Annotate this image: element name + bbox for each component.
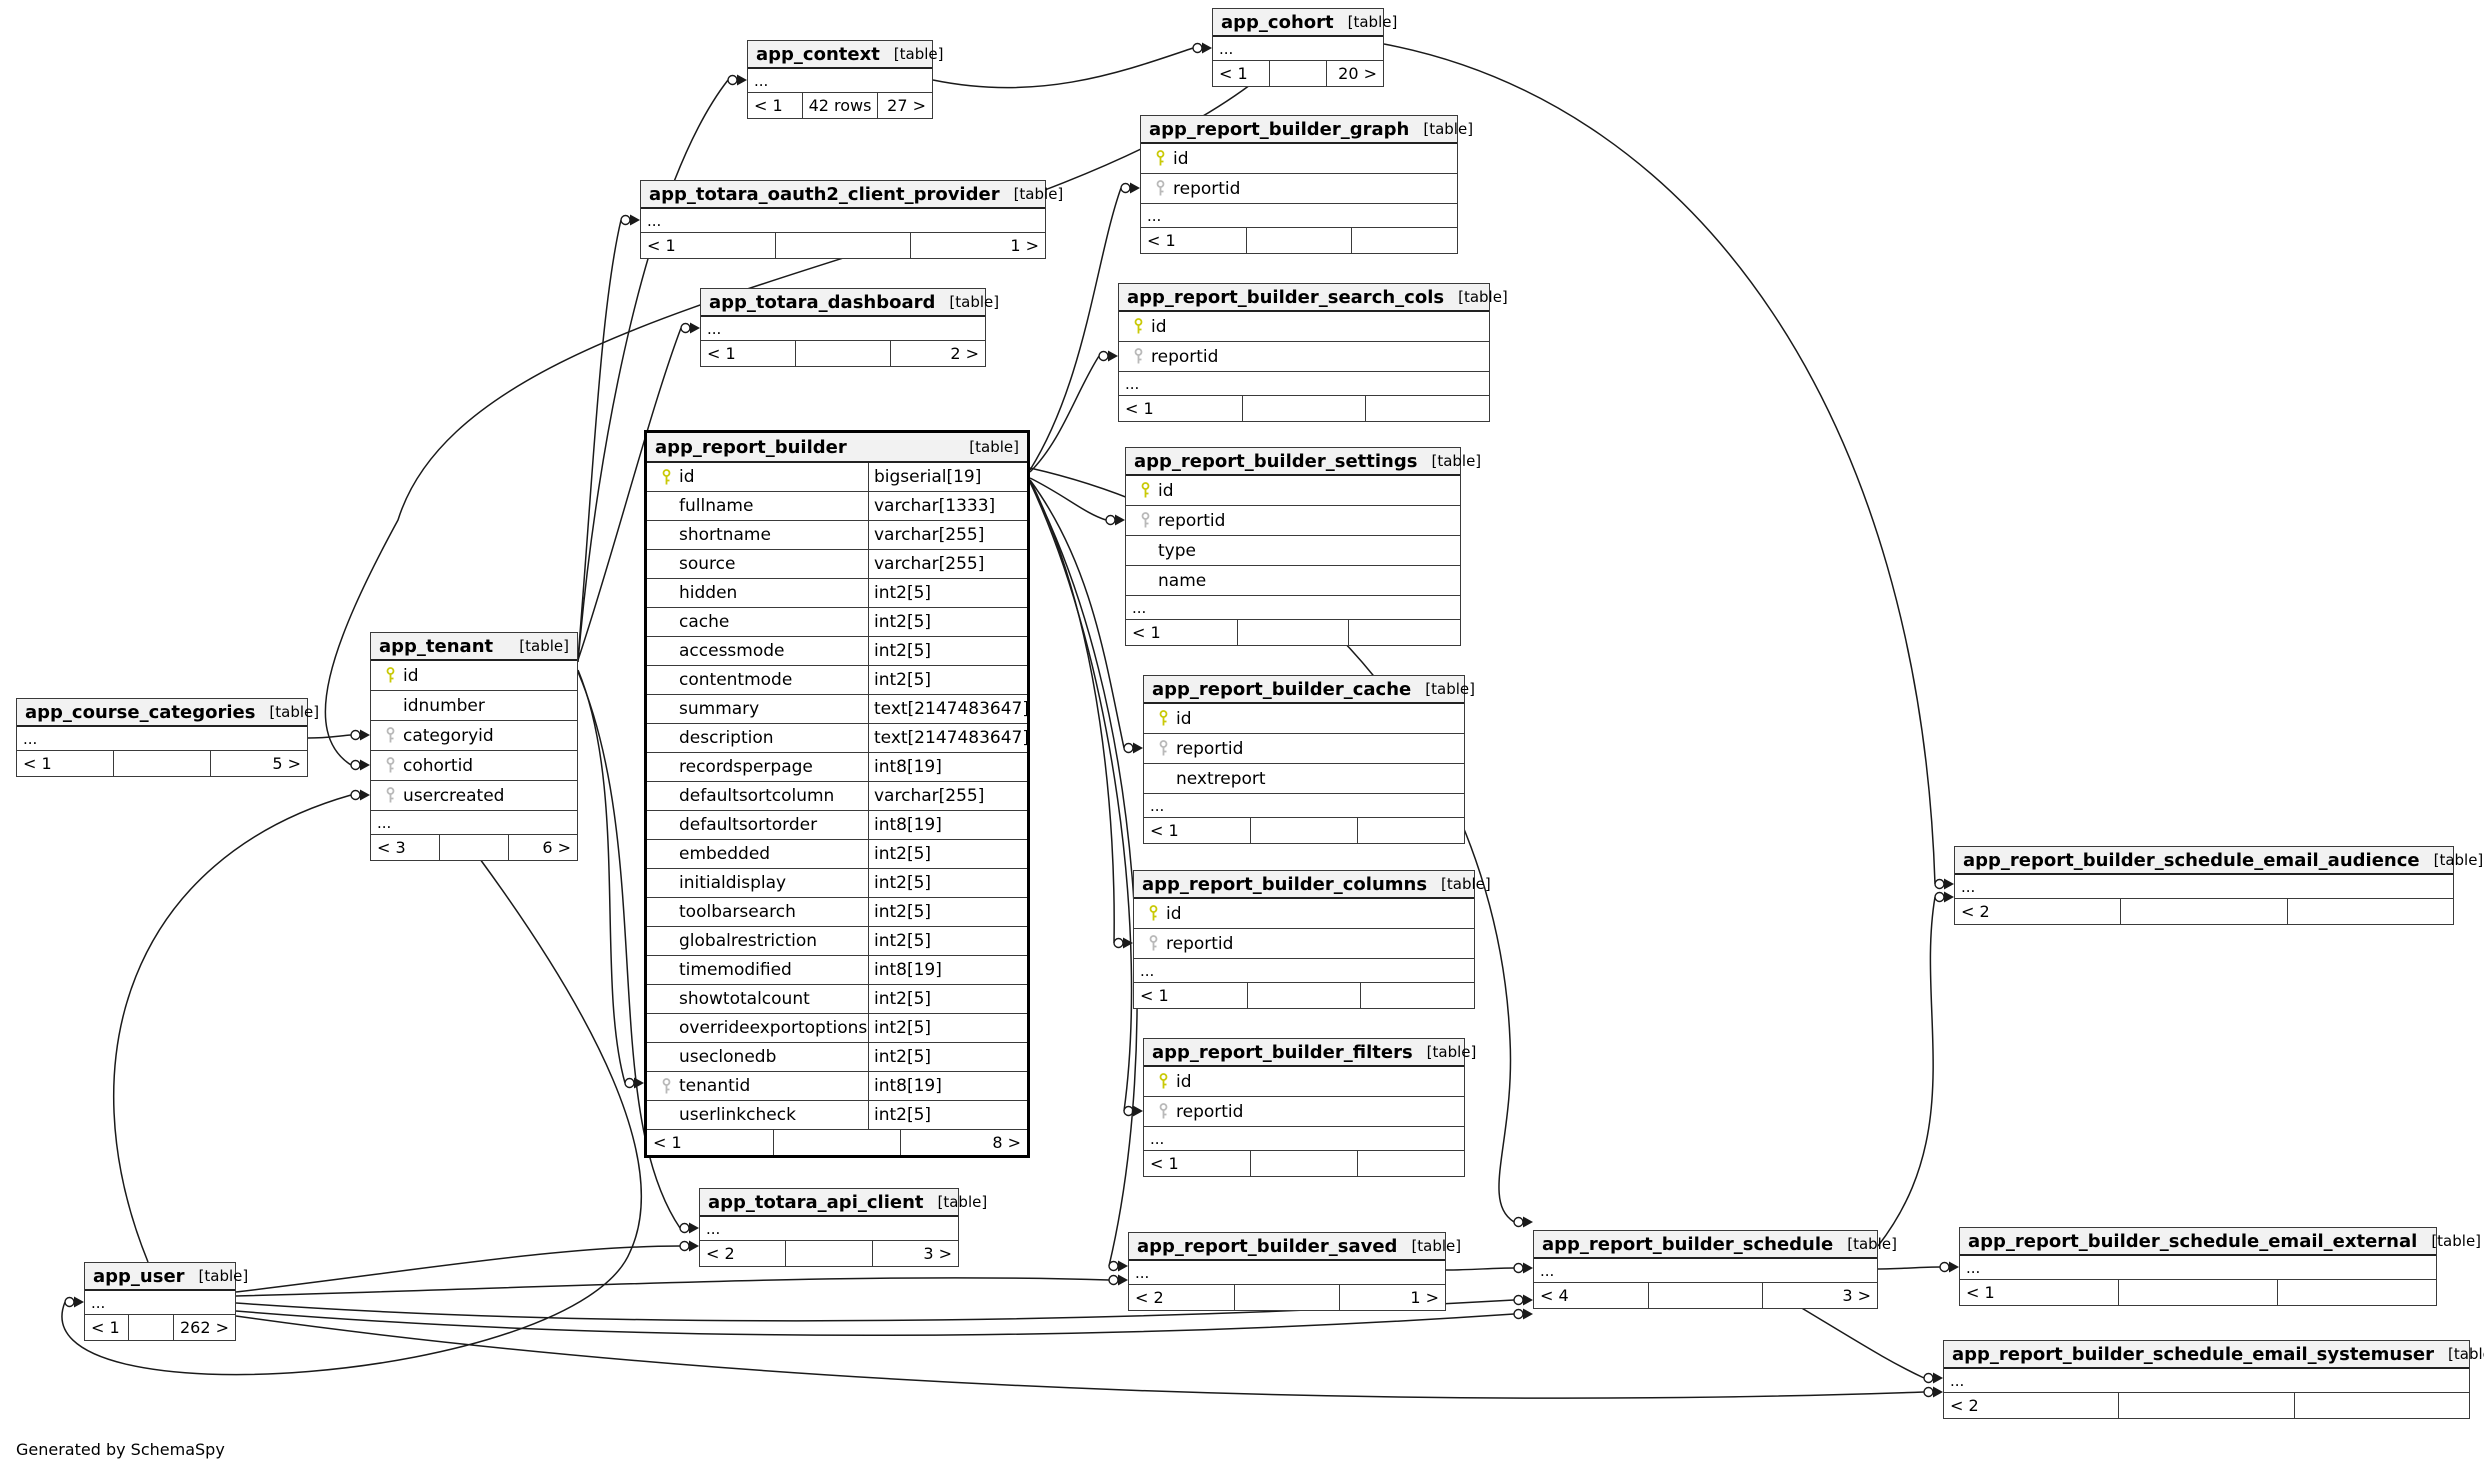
rows-count <box>440 835 509 860</box>
table-header: app_report_builder_settings[table] <box>1126 448 1460 476</box>
edge-line <box>1446 1268 1514 1270</box>
edge-app_context--app_cohort <box>933 43 1212 88</box>
table-badge: [table] <box>519 637 569 655</box>
table-badge: [table] <box>2431 1232 2481 1250</box>
column-name: id <box>1176 709 1192 729</box>
column-row-categoryid: categoryid <box>371 721 577 751</box>
table-title: app_report_builder_columns <box>1142 874 1427 895</box>
parents-count: < 1 <box>17 751 114 776</box>
table-badge: [table] <box>1014 185 1064 203</box>
column-row-showtotalcount: showtotalcountint2[5] <box>647 985 1027 1014</box>
column-name: embedded <box>679 844 770 864</box>
column-name-cell: tenantid <box>647 1072 868 1100</box>
column-name: id <box>1173 149 1189 169</box>
edge-arrowhead-icon <box>1115 515 1125 526</box>
column-name: timemodified <box>679 960 792 980</box>
edge-line <box>236 1311 1514 1335</box>
column-name: recordsperpage <box>679 757 813 777</box>
children-count: 3 > <box>873 1241 958 1266</box>
column-name-cell: defaultsortorder <box>647 811 868 839</box>
column-row-cohortid: cohortid <box>371 751 577 781</box>
table-app_report_builder_search_cols[interactable]: app_report_builder_search_cols[table]idr… <box>1118 283 1490 422</box>
more-columns-ellipsis: ... <box>1534 1259 1877 1283</box>
edge-app_user--app_tenant.usercreated <box>114 790 370 1263</box>
table-title: app_context <box>756 44 880 65</box>
edge-line <box>236 1246 680 1292</box>
column-name: cache <box>679 612 729 632</box>
children-count <box>1349 620 1460 645</box>
column-name: showtotalcount <box>679 989 810 1009</box>
key-slot <box>1147 150 1173 167</box>
column-row-initialdisplay: initialdisplayint2[5] <box>647 869 1027 898</box>
table-badge: [table] <box>1431 452 1481 470</box>
table-badge: [table] <box>1425 680 1475 698</box>
edge-zero-many-icon <box>728 76 737 85</box>
parents-count: < 1 <box>1960 1280 2119 1305</box>
edge-arrowhead-icon <box>1944 892 1954 903</box>
column-name-cell: shortname <box>647 521 868 549</box>
parents-count: < 1 <box>701 341 796 366</box>
more-columns-ellipsis: ... <box>1144 794 1464 818</box>
edge-zero-many-icon <box>1121 184 1130 193</box>
rows-count <box>1248 983 1362 1008</box>
parents-count: < 1 <box>1144 1151 1251 1176</box>
column-name-cell: cohortid <box>371 751 577 780</box>
edge-arrowhead-icon <box>1133 743 1143 754</box>
column-type: int8[19] <box>868 956 1027 984</box>
table-footer: < 21 > <box>1129 1285 1445 1310</box>
column-name-cell: recordsperpage <box>647 753 868 781</box>
table-app_report_builder_schedule_email_systemuser[interactable]: app_report_builder_schedule_email_system… <box>1943 1340 2470 1419</box>
column-name: shortname <box>679 525 771 545</box>
column-type: int2[5] <box>868 1101 1027 1129</box>
column-name: tenantid <box>679 1076 750 1096</box>
column-row-recordsperpage: recordsperpageint8[19] <box>647 753 1027 782</box>
er-diagram-canvas: Generated by SchemaSpy app_context[table… <box>0 0 2484 1468</box>
edge-line <box>1030 480 1114 943</box>
column-type: int2[5] <box>868 608 1027 636</box>
edge-arrowhead-icon <box>360 760 370 771</box>
column-type: int2[5] <box>868 579 1027 607</box>
parents-count: < 4 <box>1534 1283 1649 1308</box>
edge-arrowhead-icon <box>1933 1373 1943 1384</box>
more-columns-ellipsis: ... <box>1126 596 1460 620</box>
edge-zero-many-icon <box>351 791 360 800</box>
table-app_user[interactable]: app_user[table]...< 1262 > <box>84 1262 236 1341</box>
column-name-cell: userlinkcheck <box>647 1101 868 1129</box>
column-name-cell: timemodified <box>647 956 868 984</box>
table-footer: < 36 > <box>371 835 577 860</box>
column-name-cell: contentmode <box>647 666 868 694</box>
column-row-source: sourcevarchar[255] <box>647 550 1027 579</box>
column-row-id: id <box>1126 476 1460 506</box>
column-name: id <box>1151 317 1167 337</box>
primary-key-icon <box>1140 482 1151 499</box>
column-row-overrideexportoptions: overrideexportoptionsint2[5] <box>647 1014 1027 1043</box>
table-title: app_report_builder_schedule_email_extern… <box>1968 1231 2417 1252</box>
column-name-cell: embedded <box>647 840 868 868</box>
column-row-accessmode: accessmodeint2[5] <box>647 637 1027 666</box>
table-header: app_report_builder_schedule_email_audien… <box>1955 847 2453 875</box>
column-name: id <box>679 467 695 487</box>
table-app_report_builder_schedule[interactable]: app_report_builder_schedule[table]...< 4… <box>1533 1230 1878 1309</box>
edge-zero-many-icon <box>680 1242 689 1251</box>
foreign-key-icon <box>1158 1103 1169 1120</box>
table-footer: < 142 rows27 > <box>748 93 932 118</box>
edge-line <box>1030 482 1137 1266</box>
column-name-cell: showtotalcount <box>647 985 868 1013</box>
column-row-cache: cacheint2[5] <box>647 608 1027 637</box>
table-title: app_course_categories <box>25 702 255 723</box>
table-badge: [table] <box>1458 288 1508 306</box>
column-row-contentmode: contentmodeint2[5] <box>647 666 1027 695</box>
column-type: varchar[1333] <box>868 492 1027 520</box>
children-count <box>1358 818 1464 843</box>
table-header: app_course_categories[table] <box>17 699 307 727</box>
table-app_report_builder[interactable]: app_report_builder[table]idbigserial[19]… <box>644 430 1030 1158</box>
column-name: id <box>403 666 419 686</box>
table-app_report_builder_schedule_email_audience[interactable]: app_report_builder_schedule_email_audien… <box>1954 846 2454 925</box>
children-count <box>2278 1280 2436 1305</box>
column-row-id: id <box>1134 899 1474 929</box>
edge-arrowhead-icon <box>360 730 370 741</box>
column-row-shortname: shortnamevarchar[255] <box>647 521 1027 550</box>
edge-arrowhead-icon <box>689 1223 699 1234</box>
foreign-key-icon <box>1158 740 1169 757</box>
more-columns-ellipsis: ... <box>1119 372 1489 396</box>
foreign-key-icon <box>385 727 396 744</box>
edge-zero-many-icon <box>1109 1276 1118 1285</box>
column-name: nextreport <box>1176 769 1266 789</box>
edge-arrowhead-icon <box>1108 351 1118 362</box>
column-name: useclonedb <box>679 1047 776 1067</box>
children-count: 20 > <box>1327 61 1383 86</box>
key-slot <box>1132 512 1158 529</box>
column-type: int2[5] <box>868 1014 1027 1042</box>
edge-zero-many-icon <box>625 1079 634 1088</box>
edge-arrowhead-icon <box>690 323 700 334</box>
table-app_report_builder_saved[interactable]: app_report_builder_saved[table]...< 21 > <box>1128 1232 1446 1311</box>
primary-key-icon <box>1158 710 1169 727</box>
column-type: int2[5] <box>868 869 1027 897</box>
column-name-cell: overrideexportoptions <box>647 1014 868 1042</box>
table-header: app_report_builder_cache[table] <box>1144 676 1464 704</box>
table-footer: < 1 <box>1960 1280 2436 1305</box>
parents-count: < 1 <box>1119 396 1243 421</box>
edge-zero-many-icon <box>1114 939 1123 948</box>
table-footer: < 1 <box>1144 1151 1464 1176</box>
table-app_report_builder_graph[interactable]: app_report_builder_graph[table]idreporti… <box>1140 115 1458 254</box>
table-title: app_report_builder_cache <box>1152 679 1411 700</box>
edge-zero-many-icon <box>1514 1296 1523 1305</box>
table-app_course_categories[interactable]: app_course_categories[table]...< 15 > <box>16 698 308 777</box>
table-title: app_report_builder_filters <box>1152 1042 1413 1063</box>
more-columns-ellipsis: ... <box>371 811 577 835</box>
parents-count: < 1 <box>85 1315 129 1340</box>
parents-count: < 1 <box>1126 620 1238 645</box>
children-count: 2 > <box>891 341 985 366</box>
rows-count <box>774 1130 901 1155</box>
table-title: app_totara_oauth2_client_provider <box>649 184 1000 205</box>
edge-line <box>236 1316 1924 1398</box>
edge-zero-many-icon <box>1109 1262 1118 1271</box>
table-title: app_tenant <box>379 636 493 657</box>
edge-app_user--app_report_builder_schedule <box>236 1309 1533 1336</box>
column-name: defaultsortcolumn <box>679 786 834 806</box>
table-header: app_totara_api_client[table] <box>700 1189 958 1217</box>
edge-app_report_builder_schedule--app_report_builder_schedule_email_external <box>1878 1262 1959 1273</box>
table-footer: < 1262 > <box>85 1315 235 1340</box>
rows-count <box>1649 1283 1764 1308</box>
edge-arrowhead-icon <box>74 1297 84 1308</box>
edge-app_report_builder_saved--app_report_builder_schedule <box>1446 1263 1533 1274</box>
children-count: 262 > <box>174 1315 235 1340</box>
edge-arrowhead-icon <box>1133 1106 1143 1117</box>
column-row-id: id <box>1144 704 1464 734</box>
table-title: app_report_builder_schedule <box>1542 1234 1833 1255</box>
table-footer: < 23 > <box>700 1241 958 1266</box>
parents-count: < 1 <box>1213 61 1270 86</box>
column-row-toolbarsearch: toolbarsearchint2[5] <box>647 898 1027 927</box>
column-row-fullname: fullnamevarchar[1333] <box>647 492 1027 521</box>
parents-count: < 1 <box>641 233 776 258</box>
column-name-cell: id <box>371 661 577 690</box>
table-app_totara_api_client[interactable]: app_totara_api_client[table]...< 23 > <box>699 1188 959 1267</box>
column-type: int2[5] <box>868 840 1027 868</box>
table-app_report_builder_columns[interactable]: app_report_builder_columns[table]idrepor… <box>1133 870 1475 1009</box>
column-name-cell: id <box>1119 312 1489 341</box>
edge-line <box>1800 1307 1924 1378</box>
table-title: app_totara_api_client <box>708 1192 924 1213</box>
column-row-timemodified: timemodifiedint8[19] <box>647 956 1027 985</box>
more-columns-ellipsis: ... <box>1944 1369 2469 1393</box>
key-slot <box>1140 905 1166 922</box>
table-title: app_cohort <box>1221 12 1334 33</box>
column-name-cell: reportid <box>1141 174 1457 203</box>
key-slot <box>377 727 403 744</box>
edge-arrowhead-icon <box>737 75 747 86</box>
edge-arrowhead-icon <box>1118 1261 1128 1272</box>
column-name-cell: nextreport <box>1144 764 1464 793</box>
primary-key-icon <box>1133 318 1144 335</box>
table-footer: < 43 > <box>1534 1283 1877 1308</box>
table-title: app_report_builder <box>655 437 847 458</box>
foreign-key-icon <box>385 757 396 774</box>
table-footer: < 11 > <box>641 233 1045 258</box>
primary-key-icon <box>1158 1073 1169 1090</box>
more-columns-ellipsis: ... <box>1141 204 1457 228</box>
table-footer: < 1 <box>1144 818 1464 843</box>
primary-key-icon <box>385 667 396 684</box>
column-type: int2[5] <box>868 1043 1027 1071</box>
table-title: app_report_builder_schedule_email_system… <box>1952 1344 2434 1365</box>
column-name-cell: globalrestriction <box>647 927 868 955</box>
children-count: 5 > <box>211 751 307 776</box>
children-count <box>1358 1151 1464 1176</box>
edge-zero-many-icon <box>1924 1374 1933 1383</box>
column-name-cell: id <box>1144 1067 1464 1096</box>
table-app_context[interactable]: app_context[table]...< 142 rows27 > <box>747 40 933 119</box>
children-count <box>1366 396 1489 421</box>
column-name-cell: id <box>1126 476 1460 505</box>
edge-zero-many-icon <box>1514 1264 1523 1273</box>
column-type: varchar[255] <box>868 550 1027 578</box>
column-name: reportid <box>1166 934 1233 954</box>
key-slot <box>377 757 403 774</box>
table-app_report_builder_settings[interactable]: app_report_builder_settings[table]idrepo… <box>1125 447 1461 646</box>
edge-zero-many-icon <box>1924 1388 1933 1397</box>
foreign-key-icon <box>1148 935 1159 952</box>
column-name: reportid <box>1173 179 1240 199</box>
table-title: app_report_builder_graph <box>1149 119 1409 140</box>
edge-arrowhead-icon <box>360 790 370 801</box>
table-app_totara_dashboard[interactable]: app_totara_dashboard[table]...< 12 > <box>700 288 986 367</box>
column-name-cell: reportid <box>1134 929 1474 958</box>
edge-zero-many-icon <box>1935 880 1944 889</box>
parents-count: < 1 <box>1144 818 1251 843</box>
column-type: int8[19] <box>868 1072 1027 1100</box>
edge-zero-many-icon <box>65 1298 74 1307</box>
more-columns-ellipsis: ... <box>700 1217 958 1241</box>
parents-count: < 1 <box>1141 228 1247 253</box>
table-footer: < 1 <box>1134 983 1474 1008</box>
table-app_tenant[interactable]: app_tenant[table]ididnumbercategoryidcoh… <box>370 632 578 861</box>
edge-arrowhead-icon <box>1944 879 1954 890</box>
foreign-key-icon <box>385 787 396 804</box>
table-app_report_builder_cache[interactable]: app_report_builder_cache[table]idreporti… <box>1143 675 1465 844</box>
edge-app_report_builder_schedule--app_report_builder_schedule_email_audience <box>1878 892 1954 1247</box>
edge-arrowhead-icon <box>630 215 640 226</box>
column-name: description <box>679 728 774 748</box>
key-slot <box>377 787 403 804</box>
rows-count <box>2121 899 2287 924</box>
table-badge: [table] <box>938 1193 988 1211</box>
column-row-id: idbigserial[19] <box>647 463 1027 492</box>
column-name-cell: reportid <box>1144 734 1464 763</box>
table-badge: [table] <box>1441 875 1491 893</box>
column-name: fullname <box>679 496 753 516</box>
table-header: app_report_builder[table] <box>647 433 1027 463</box>
column-type: int2[5] <box>868 898 1027 926</box>
rows-count <box>1243 396 1367 421</box>
column-name-cell: reportid <box>1126 506 1460 535</box>
edge-zero-many-icon <box>1514 1310 1523 1319</box>
rows-count <box>1247 228 1353 253</box>
table-header: app_report_builder_filters[table] <box>1144 1039 1464 1067</box>
column-type: varchar[255] <box>868 521 1027 549</box>
column-name-cell: initialdisplay <box>647 869 868 897</box>
table-app_totara_oauth2_client_provider[interactable]: app_totara_oauth2_client_provider[table]… <box>640 180 1046 259</box>
key-slot <box>377 667 403 684</box>
column-type: text[2147483647] <box>868 695 1027 723</box>
foreign-key-icon <box>1133 348 1144 365</box>
edge-line <box>1878 1267 1940 1269</box>
table-header: app_report_builder_graph[table] <box>1141 116 1457 144</box>
table-badge: [table] <box>1427 1043 1477 1061</box>
edge-zero-many-icon <box>621 216 630 225</box>
more-columns-ellipsis: ... <box>641 209 1045 233</box>
column-row-defaultsortcolumn: defaultsortcolumnvarchar[255] <box>647 782 1027 811</box>
column-type: bigserial[19] <box>868 463 1027 491</box>
rows-count <box>796 341 891 366</box>
foreign-key-icon <box>661 1078 672 1095</box>
table-app_report_builder_schedule_email_external[interactable]: app_report_builder_schedule_email_extern… <box>1959 1227 2437 1306</box>
table-badge: [table] <box>1847 1235 1897 1253</box>
table-app_cohort[interactable]: app_cohort[table]...< 120 > <box>1212 8 1384 87</box>
children-count <box>2295 1393 2469 1418</box>
key-slot <box>1150 710 1176 727</box>
column-name: toolbarsearch <box>679 902 796 922</box>
column-name: hidden <box>679 583 737 603</box>
more-columns-ellipsis: ... <box>1955 875 2453 899</box>
column-row-reportid: reportid <box>1126 506 1460 536</box>
column-name-cell: useclonedb <box>647 1043 868 1071</box>
more-columns-ellipsis: ... <box>17 727 307 751</box>
column-name: categoryid <box>403 726 494 746</box>
column-name-cell: source <box>647 550 868 578</box>
column-name: globalrestriction <box>679 931 817 951</box>
rows-count: 42 rows <box>803 93 879 118</box>
column-name: id <box>1158 481 1174 501</box>
edge-zero-many-icon <box>351 761 360 770</box>
foreign-key-icon <box>1140 512 1151 529</box>
table-app_report_builder_filters[interactable]: app_report_builder_filters[table]idrepor… <box>1143 1038 1465 1177</box>
edge-zero-many-icon <box>1106 516 1115 525</box>
table-header: app_cohort[table] <box>1213 9 1383 37</box>
column-row-nextreport: nextreport <box>1144 764 1464 794</box>
key-slot <box>1150 1103 1176 1120</box>
edge-zero-many-icon <box>680 1224 689 1233</box>
children-count: 1 > <box>911 233 1045 258</box>
edge-app_user--app_report_builder_schedule_email_systemuser <box>236 1316 1943 1398</box>
children-count: 6 > <box>509 835 577 860</box>
edge-line <box>1030 356 1099 472</box>
column-type: text[2147483647] <box>868 724 1027 752</box>
column-row-reportid: reportid <box>1134 929 1474 959</box>
key-slot <box>1132 482 1158 499</box>
parents-count: < 2 <box>1955 899 2121 924</box>
edge-arrowhead-icon <box>1523 1295 1533 1306</box>
column-row-id: id <box>371 661 577 691</box>
column-row-reportid: reportid <box>1144 734 1464 764</box>
column-name: reportid <box>1158 511 1225 531</box>
column-name-cell: fullname <box>647 492 868 520</box>
table-title: app_report_builder_search_cols <box>1127 287 1444 308</box>
table-badge: [table] <box>2434 851 2484 869</box>
table-header: app_report_builder_saved[table] <box>1129 1233 1445 1261</box>
column-name-cell: description <box>647 724 868 752</box>
parents-count: < 2 <box>1944 1393 2119 1418</box>
rows-count <box>1251 1151 1358 1176</box>
column-name-cell: reportid <box>1119 342 1489 371</box>
rows-count <box>1238 620 1350 645</box>
column-name: name <box>1158 571 1206 591</box>
column-name-cell: type <box>1126 536 1460 565</box>
edge-zero-many-icon <box>1940 1263 1949 1272</box>
table-header: app_report_builder_search_cols[table] <box>1119 284 1489 312</box>
edge-arrowhead-icon <box>1202 43 1212 54</box>
column-row-id: id <box>1141 144 1457 174</box>
edge-arrowhead-icon <box>1933 1387 1943 1398</box>
key-slot <box>653 469 679 486</box>
column-name-cell: accessmode <box>647 637 868 665</box>
more-columns-ellipsis: ... <box>1134 959 1474 983</box>
column-name-cell: reportid <box>1144 1097 1464 1126</box>
edge-arrowhead-icon <box>1949 1262 1959 1273</box>
column-name: idnumber <box>403 696 485 716</box>
table-footer: < 120 > <box>1213 61 1383 86</box>
column-name: accessmode <box>679 641 785 661</box>
